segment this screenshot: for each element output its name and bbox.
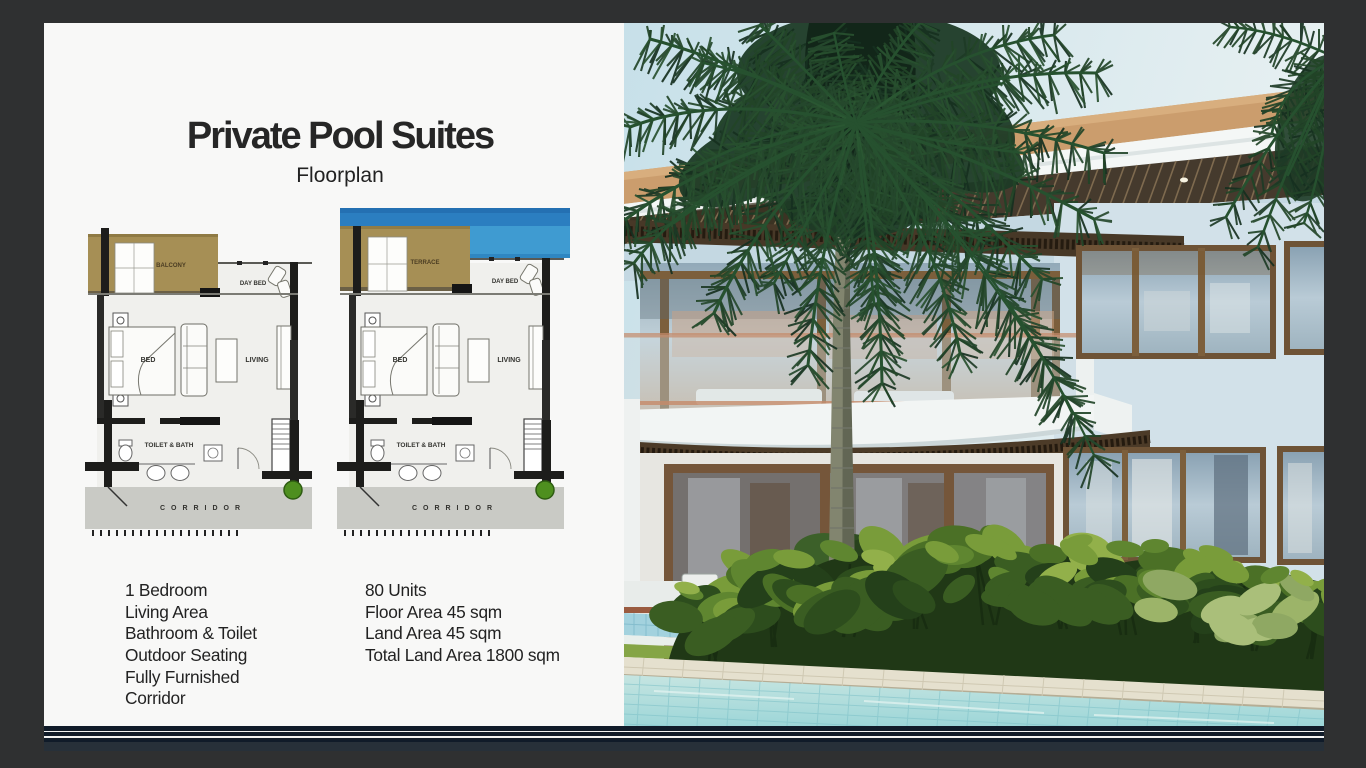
svg-text:CORRIDOR: CORRIDOR [412,505,498,512]
svg-text:BED: BED [393,357,408,364]
svg-text:CORRIDOR: CORRIDOR [160,505,246,512]
svg-text:BED: BED [141,357,156,364]
svg-text:LIVING: LIVING [497,357,521,364]
svg-text:BALCONY: BALCONY [156,263,186,269]
svg-text:LIVING: LIVING [245,357,269,364]
svg-text:DAY BED: DAY BED [492,279,519,285]
svg-text:DAY BED: DAY BED [240,281,267,287]
svg-text:TOILET & BATH: TOILET & BATH [397,442,446,449]
svg-text:TERRACE: TERRACE [410,260,439,266]
svg-text:TOILET & BATH: TOILET & BATH [145,442,194,449]
